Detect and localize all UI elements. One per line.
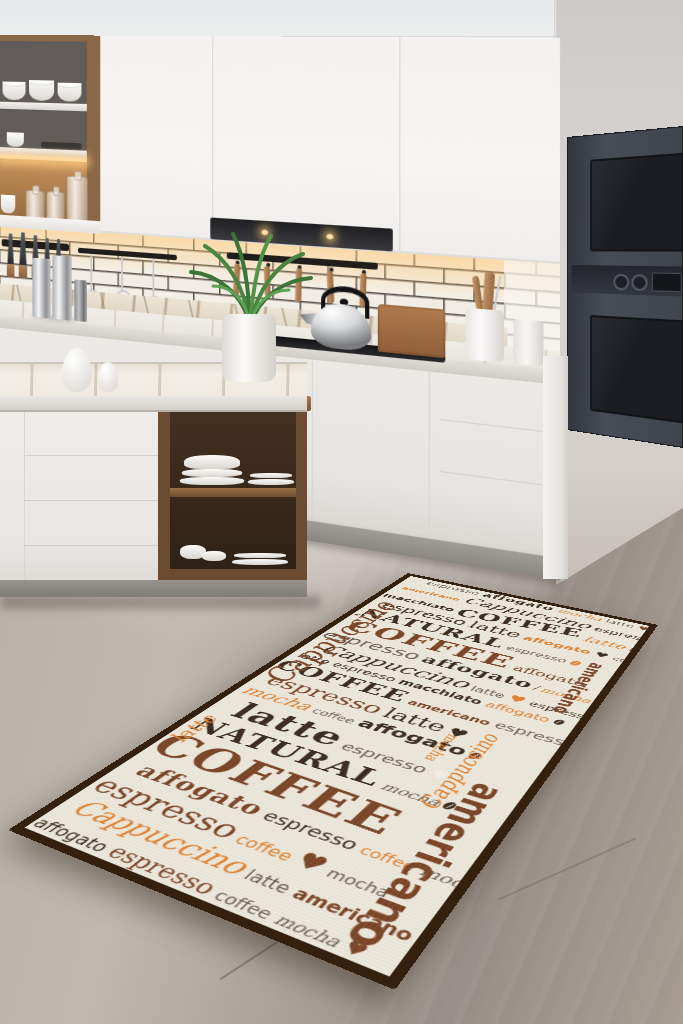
wall-oven: [567, 126, 683, 448]
island-open-shelf: [158, 396, 307, 580]
drawer-seam: [24, 455, 158, 456]
open-shelf-unit: [0, 35, 100, 234]
canister-small: [74, 280, 86, 323]
bowl: [3, 81, 26, 100]
drawer-lines: [440, 373, 543, 556]
plate-stack: [250, 473, 292, 478]
coffee-bean-icon: [551, 719, 566, 726]
white-jar: [513, 319, 543, 367]
drawer-seam: [24, 500, 158, 501]
island-kick-plate: [0, 580, 307, 597]
jar-lid: [53, 186, 60, 196]
heart-icon: ♥: [506, 694, 528, 705]
coffee-bean-icon: [568, 660, 583, 666]
cutting-board: [378, 304, 446, 358]
plate-stack: [234, 553, 286, 558]
small-bowl: [202, 551, 226, 561]
canister: [52, 255, 71, 321]
oven-knob: [631, 274, 647, 291]
wall-end-panel: [543, 356, 568, 579]
island-counter-edge: [0, 396, 307, 412]
oven-upper-door: [590, 153, 683, 252]
cabinet-seam: [312, 360, 313, 522]
drawer-seam: [440, 471, 543, 486]
utensil-handle: [152, 259, 154, 298]
coffee-cup: [7, 132, 24, 147]
shelf-board: [0, 102, 87, 112]
bowl-rim: [3, 81, 26, 87]
bowl-stack: [180, 477, 244, 485]
shelf-board: [170, 488, 296, 497]
oven-knob: [613, 274, 629, 291]
bowl-rim: [29, 80, 54, 86]
utensil-handle: [90, 254, 92, 292]
heart-icon: ♥: [636, 626, 649, 632]
cabinet-seam: [429, 372, 430, 539]
drawer-seam: [440, 419, 543, 432]
island-floor-shadow: [0, 595, 320, 609]
hood-light: [326, 234, 333, 240]
coffee-bean-icon: [412, 935, 426, 943]
utensil-handle: [121, 256, 123, 292]
glass-jar: [46, 191, 64, 221]
rug-word: coffee: [211, 889, 276, 922]
oven-control-panel: [572, 265, 682, 297]
glass-jar-large: [66, 176, 87, 223]
bowl: [29, 80, 54, 101]
plant-vase: [222, 314, 276, 382]
bowl-stack: [184, 455, 240, 469]
plate-stack: [248, 479, 294, 485]
glass-jar: [26, 190, 45, 220]
shelf-interior: [0, 41, 87, 220]
fern-plant: [185, 228, 315, 328]
canister: [32, 258, 50, 319]
knife-handle: [19, 265, 28, 279]
knife-handle: [7, 264, 15, 278]
drawer-seam: [24, 410, 25, 580]
bowl-rim: [58, 83, 82, 89]
heart-icon: ♥: [593, 651, 610, 659]
oven-display: [652, 272, 682, 292]
kitchen-scene: espressoaffogatomochalatte♥macchiatoamer…: [0, 0, 683, 1024]
oven-lower-door: [590, 315, 683, 423]
jar-lid: [32, 185, 39, 195]
bowl-stack: [182, 469, 242, 477]
cabinet-seam: [399, 37, 400, 251]
jar-lid: [74, 171, 82, 181]
bowl: [58, 83, 82, 102]
drawer-seam: [24, 545, 158, 546]
cup: [1, 195, 15, 214]
plate-stack: [232, 559, 288, 565]
utensil-crock: [465, 308, 504, 363]
cabinet-seam: [212, 36, 213, 238]
decor-vase-small: [98, 362, 118, 392]
